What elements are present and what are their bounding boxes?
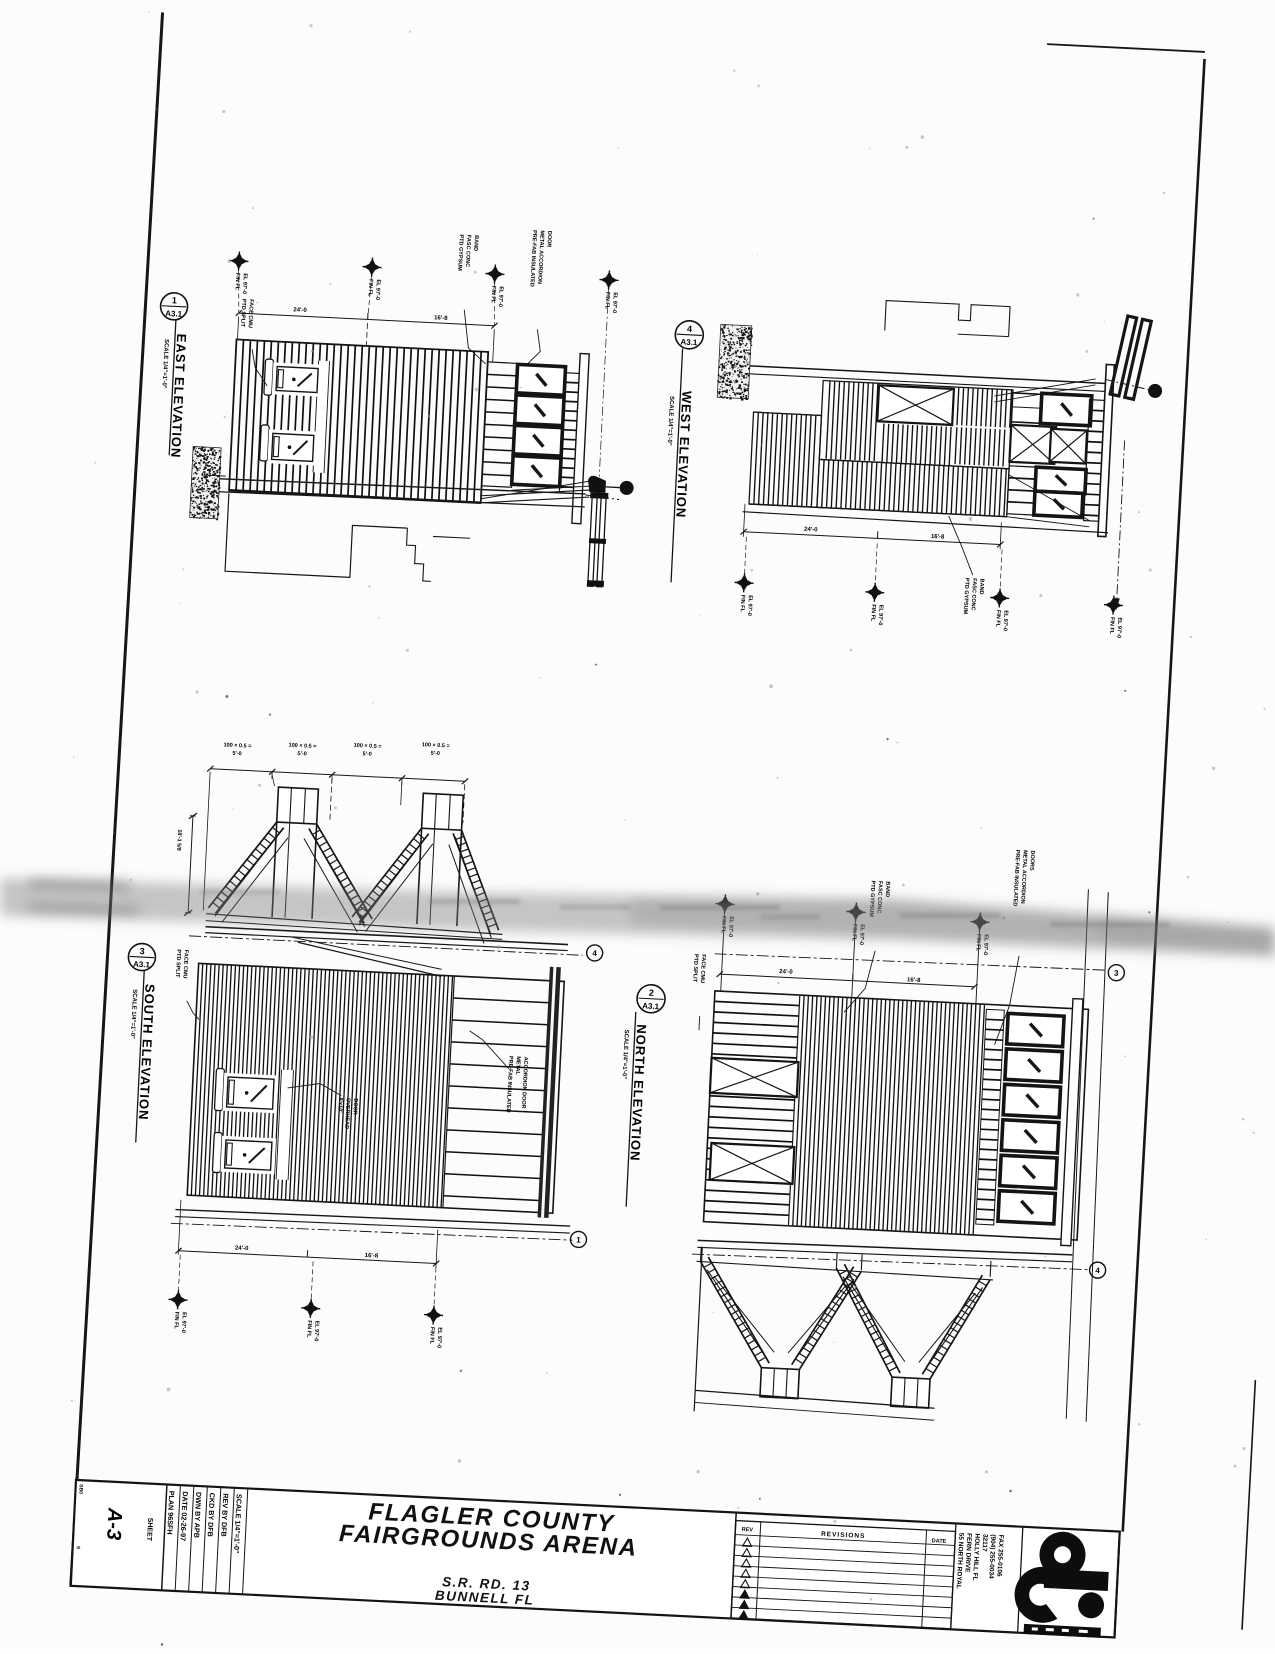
svg-text:DOOR: DOOR	[351, 1098, 358, 1115]
svg-text:A3.1: A3.1	[133, 960, 151, 970]
svg-text:EL 97'-0: EL 97'-0	[313, 1320, 320, 1341]
svg-text:FIN FL: FIN FL	[604, 292, 611, 310]
svg-text:9: 9	[75, 1546, 81, 1549]
svg-text:FIN FL: FIN FL	[173, 1312, 180, 1330]
svg-text:EL 97'-0: EL 97'-0	[180, 1312, 187, 1333]
svg-text:16'-8: 16'-8	[434, 314, 448, 322]
svg-text:8'×10': 8'×10'	[336, 1097, 343, 1113]
svg-text:5'-0: 5'-0	[297, 751, 307, 757]
svg-text:16'-8: 16'-8	[931, 533, 945, 541]
svg-text:SB0: SB0	[77, 1484, 83, 1494]
svg-text:EL 97'-0: EL 97'-0	[746, 595, 753, 616]
svg-text:FIN FL: FIN FL	[305, 1320, 312, 1338]
svg-text:32117: 32117	[981, 1534, 989, 1552]
svg-text:REV: REV	[742, 1527, 754, 1534]
svg-text:5'-0: 5'-0	[232, 751, 242, 757]
svg-text:A3.1: A3.1	[642, 1001, 660, 1011]
svg-text:EL 97'-0: EL 97'-0	[435, 1327, 442, 1348]
svg-text:FIN FL: FIN FL	[869, 604, 876, 622]
svg-text:16'-8: 16'-8	[365, 1252, 379, 1260]
svg-text:5'-0: 5'-0	[431, 751, 441, 757]
svg-text:18'-1 5/8: 18'-1 5/8	[175, 829, 182, 851]
svg-text:24'-0: 24'-0	[779, 968, 793, 976]
svg-text:EL 97'-0: EL 97'-0	[877, 604, 884, 625]
svg-text:EL 97'-0: EL 97'-0	[1002, 610, 1009, 631]
svg-text:4: 4	[687, 324, 693, 334]
svg-text:FIN FL: FIN FL	[1108, 617, 1115, 635]
svg-text:A3.1: A3.1	[680, 337, 698, 347]
svg-text:24'-0: 24'-0	[293, 306, 307, 314]
svg-text:METAL: METAL	[514, 1056, 521, 1075]
svg-text:EL 97'-0: EL 97'-0	[241, 273, 248, 294]
svg-text:EL 97'-0: EL 97'-0	[1115, 617, 1122, 638]
svg-text:24'-0: 24'-0	[804, 526, 818, 534]
svg-text:A-3: A-3	[102, 1506, 126, 1540]
svg-text:SHEET: SHEET	[145, 1517, 153, 1541]
svg-text:1: 1	[172, 295, 178, 305]
svg-text:FIN FL: FIN FL	[994, 610, 1001, 628]
svg-text:3: 3	[139, 946, 145, 956]
svg-text:EL 97'-0: EL 97'-0	[497, 286, 504, 307]
svg-text:FIN FL: FIN FL	[234, 273, 241, 291]
svg-text:BAND: BAND	[472, 235, 479, 251]
svg-text:24'-0: 24'-0	[235, 1245, 249, 1253]
svg-text:5'-0: 5'-0	[362, 751, 372, 757]
svg-text:EL 97'-0: EL 97'-0	[374, 279, 381, 300]
svg-text:BAND: BAND	[978, 578, 985, 594]
svg-text:2: 2	[649, 988, 655, 998]
svg-text:BAND: BAND	[884, 881, 891, 897]
svg-text:FIN FL: FIN FL	[428, 1327, 435, 1345]
svg-text:A3.1: A3.1	[165, 309, 183, 319]
svg-text:16'-8: 16'-8	[907, 976, 921, 984]
svg-text:FIN FL: FIN FL	[739, 595, 746, 613]
svg-text:DOOR: DOOR	[545, 231, 552, 248]
svg-text:EL 97'-0: EL 97'-0	[611, 292, 618, 313]
svg-text:FIN FL: FIN FL	[489, 286, 496, 304]
svg-text:DOORS: DOORS	[1028, 850, 1035, 871]
